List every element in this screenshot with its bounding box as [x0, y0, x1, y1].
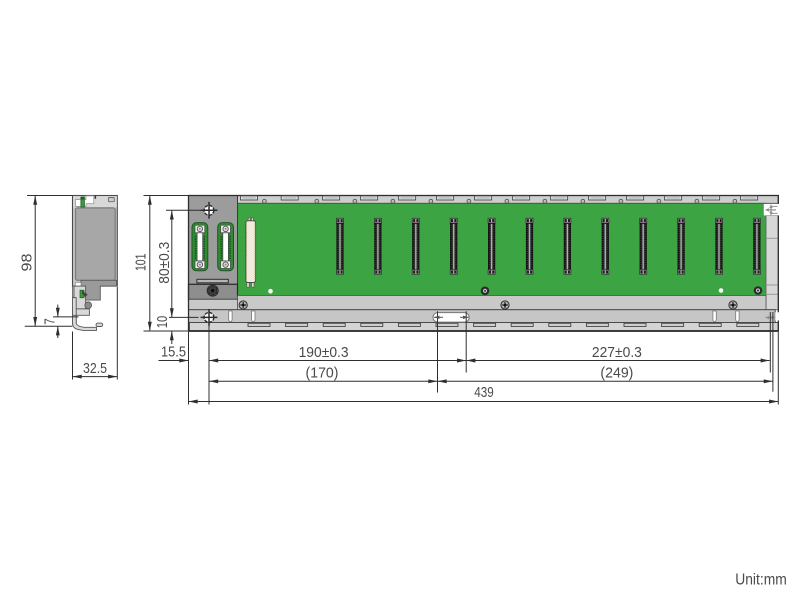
svg-text:7: 7	[42, 318, 59, 325]
svg-text:98: 98	[19, 254, 36, 272]
svg-text:439: 439	[474, 384, 494, 401]
svg-text:80±0.3: 80±0.3	[156, 242, 173, 284]
svg-text:32.5: 32.5	[83, 360, 107, 377]
svg-text:190±0.3: 190±0.3	[299, 344, 349, 361]
svg-text:(170): (170)	[306, 365, 339, 382]
svg-text:101: 101	[133, 254, 150, 272]
svg-text:10: 10	[154, 316, 171, 329]
svg-text:(249): (249)	[600, 365, 633, 382]
svg-text:15.5: 15.5	[161, 343, 186, 360]
svg-text:227±0.3: 227±0.3	[592, 344, 642, 361]
svg-text:Unit:mm: Unit:mm	[735, 572, 787, 589]
